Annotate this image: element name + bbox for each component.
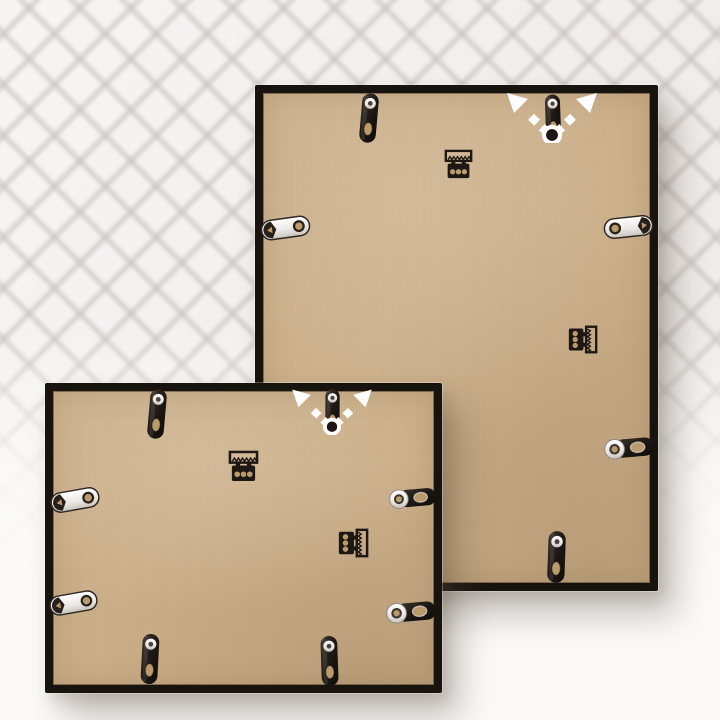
flex-tab-grommet — [384, 596, 438, 628]
flex-tab-grommet — [602, 432, 656, 464]
frames-layer — [0, 0, 720, 720]
sawtooth-hanger-vertical — [567, 324, 598, 355]
flex-tab — [356, 91, 382, 145]
hanging-arrows — [286, 383, 378, 435]
hanging-arrows — [500, 87, 604, 143]
small-frame-back — [45, 383, 442, 693]
sawtooth-hanger-horizontal — [444, 148, 473, 181]
flex-tab-silver — [602, 211, 655, 242]
flex-tab — [137, 632, 164, 685]
mdf-backing-board — [53, 391, 434, 685]
flex-tab — [316, 635, 343, 688]
flex-tab-grommet — [387, 482, 438, 514]
sawtooth-hanger-vertical — [337, 527, 369, 559]
product-photo — [0, 0, 720, 720]
flex-tab — [144, 387, 170, 441]
sawtooth-hanger-horizontal — [228, 450, 259, 483]
flex-tab — [544, 530, 569, 585]
